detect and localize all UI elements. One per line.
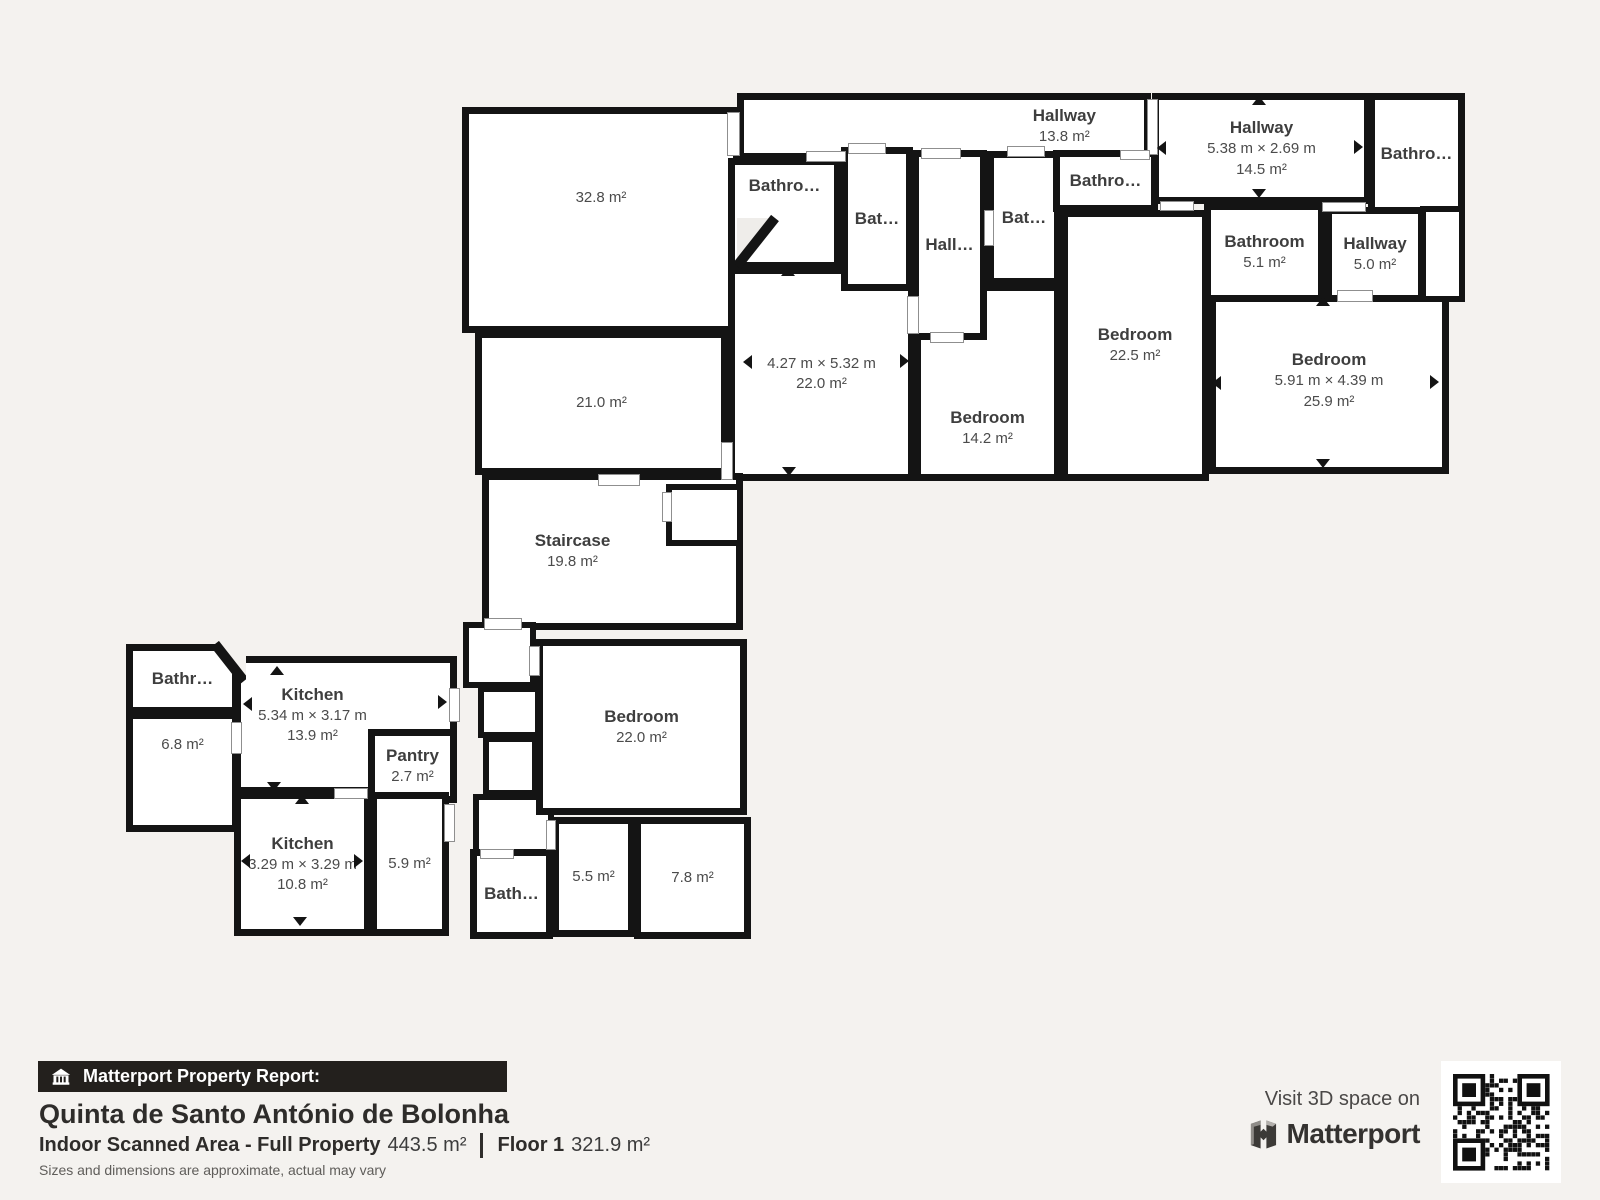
room-connector (478, 686, 541, 738)
matterport-wordmark: Matterport (1287, 1118, 1420, 1150)
dimension-arrow-right (1354, 140, 1363, 154)
room-bedroom-25-9: Bedroom 5.91 m × 4.39 m 25.9 m² (1209, 287, 1449, 474)
room-name: Bath… (484, 883, 539, 905)
room-area-6-8: 6.8 m² (126, 712, 239, 832)
door-opening (1007, 146, 1045, 157)
floor-label: Floor 1 (497, 1134, 564, 1157)
room-area: 19.8 m² (547, 552, 598, 572)
room-area: 14.5 m² (1236, 160, 1287, 180)
room-name: Kitchen (281, 684, 343, 706)
room-area-7-8: 7.8 m² (634, 817, 751, 939)
room-dims: 5.34 m × 3.17 m (258, 706, 367, 726)
room-area: 5.1 m² (1243, 253, 1286, 273)
dimension-arrow-left (241, 854, 250, 868)
dimension-arrow-right (1430, 375, 1439, 389)
diagonal-wall (210, 641, 246, 685)
matterport-promo: Visit 3D space on Matterport (1249, 1088, 1420, 1150)
room-name: Hallway (1033, 105, 1096, 127)
room-kitchen-10-8: Kitchen 3.29 m × 3.29 m 10.8 m² (234, 792, 371, 936)
room-name: Bedroom (604, 706, 679, 728)
room-dims: 5.38 m × 2.69 m (1207, 139, 1316, 159)
dimension-arrow-up (295, 795, 309, 804)
room-area: 21.0 m² (576, 393, 627, 413)
divider (480, 1133, 483, 1158)
room-name: Bat… (1002, 207, 1046, 229)
room-name: Pantry (386, 745, 439, 767)
room-name: Hallway (1343, 233, 1406, 255)
dimension-arrow-right (438, 695, 447, 709)
dimension-arrow-down (293, 917, 307, 926)
door-opening (484, 618, 522, 630)
room-area: 13.8 m² (1039, 127, 1090, 147)
room-area: 5.0 m² (1354, 255, 1397, 275)
room-area-32-8: 32.8 m² (462, 107, 740, 333)
room-area: 2.7 m² (391, 767, 434, 787)
area-summary: Indoor Scanned Area - Full Property 443.… (39, 1133, 664, 1158)
room-area: 5.9 m² (388, 854, 431, 874)
room-22-0-a: 4.27 m × 5.32 m 22.0 m² (728, 267, 915, 481)
dimension-arrow-up (270, 666, 284, 675)
dimension-arrow-left (1157, 141, 1166, 155)
dimension-arrow-left (243, 697, 252, 711)
room-closet (1420, 206, 1465, 302)
room-name: Kitchen (271, 833, 333, 855)
floor-value: 321.9 m² (571, 1134, 650, 1157)
door-opening (1160, 201, 1194, 211)
door-opening (1322, 202, 1366, 212)
room-bathroom-top-right: Bathro… (1368, 93, 1465, 216)
room-area: 13.9 m² (287, 726, 338, 746)
door-opening (449, 688, 460, 722)
dimension-arrow-down (782, 467, 796, 476)
property-name: Quinta de Santo António de Bolonha (39, 1099, 509, 1130)
dimension-arrow-up (1252, 96, 1266, 105)
room-connector (483, 736, 538, 796)
room-hallway-5-0: Hallway 5.0 m² (1325, 207, 1425, 302)
room-name: Staircase (535, 530, 611, 552)
qr-code (1441, 1061, 1561, 1183)
room-area: 22.0 m² (796, 374, 847, 394)
room-dims: 4.27 m × 5.32 m (767, 354, 876, 374)
room-stair-landing (666, 484, 743, 546)
room-name: Bat… (855, 208, 899, 230)
room-name: Hallway (1230, 117, 1293, 139)
diagonal-wall (735, 214, 781, 270)
room-bathroom-f: Bath… (470, 849, 553, 939)
disclaimer-text: Sizes and dimensions are approximate, ac… (39, 1162, 386, 1178)
room-name: Hall… (925, 234, 973, 256)
door-opening (721, 442, 733, 480)
door-opening (930, 332, 964, 343)
dimension-arrow-down (267, 782, 281, 791)
door-opening (727, 112, 740, 156)
report-bar: Matterport Property Report: (38, 1061, 507, 1092)
room-bathroom-c: Bat… (987, 151, 1061, 285)
room-name: Bathr… (152, 668, 213, 690)
dimension-arrow-down (1252, 189, 1266, 198)
room-name: Bedroom (1098, 324, 1173, 346)
door-opening (907, 296, 919, 334)
door-opening (546, 820, 556, 850)
door-opening (334, 788, 368, 799)
room-area: 14.2 m² (962, 429, 1013, 449)
door-opening (1120, 150, 1150, 160)
visit-3d-text: Visit 3D space on (1249, 1088, 1420, 1111)
room-name: Bedroom (1292, 349, 1367, 371)
room-area: 22.0 m² (616, 728, 667, 748)
room-bedroom-22-0: Bedroom 22.0 m² (536, 639, 747, 815)
room-dims: 3.29 m × 3.29 m (248, 855, 357, 875)
door-opening (1337, 290, 1373, 302)
room-name: Bathro… (1381, 143, 1453, 165)
room-hallway-14-5: Hallway 5.38 m × 2.69 m 14.5 m² (1152, 93, 1371, 204)
room-hall-corridor: Hall… (912, 150, 987, 340)
dimension-arrow-left (743, 355, 752, 369)
matterport-floor-plan-report: 32.8 m² 21.0 m² 4.27 m × 5.32 m 22.0 m² … (0, 0, 1600, 1200)
room-bathroom-b: Bat… (841, 147, 913, 291)
door-opening (529, 646, 540, 676)
room-connector (463, 622, 536, 688)
room-bathroom-5-1: Bathroom 5.1 m² (1204, 203, 1325, 302)
dimension-arrow-up (781, 267, 795, 276)
door-opening (848, 143, 886, 154)
room-area: 25.9 m² (1304, 392, 1355, 412)
room-area-5-5: 5.5 m² (552, 817, 635, 937)
room-area: 6.8 m² (161, 735, 204, 755)
room-area: 7.8 m² (671, 868, 714, 888)
dimension-arrow-right (900, 354, 909, 368)
report-bar-label: Matterport Property Report: (83, 1066, 320, 1087)
room-area-21-0: 21.0 m² (475, 331, 728, 475)
door-opening (921, 148, 961, 159)
dimension-arrow-right (354, 854, 363, 868)
room-bedroom-22-5: Bedroom 22.5 m² (1061, 210, 1209, 481)
dimension-arrow-left (1212, 376, 1221, 390)
room-name: Bathro… (1070, 170, 1142, 192)
dimension-arrow-down (1316, 459, 1330, 468)
room-area: 32.8 m² (576, 188, 627, 208)
door-opening (480, 849, 514, 859)
room-name: Bedroom (950, 407, 1025, 429)
door-opening (598, 474, 640, 486)
room-area: 10.8 m² (277, 875, 328, 895)
floor-plan: 32.8 m² 21.0 m² 4.27 m × 5.32 m 22.0 m² … (0, 0, 1600, 1200)
matterport-logo-icon (1249, 1119, 1278, 1150)
door-opening (984, 210, 994, 246)
room-area: 5.5 m² (572, 867, 615, 887)
room-area: 22.5 m² (1110, 346, 1161, 366)
room-dims: 5.91 m × 4.39 m (1275, 371, 1384, 391)
property-icon (51, 1067, 71, 1087)
door-opening (806, 151, 846, 162)
room-area-5-9: 5.9 m² (370, 792, 449, 936)
room-name: Bathroom (1224, 231, 1304, 253)
room-name: Bathro… (749, 175, 821, 197)
scanned-area-label: Indoor Scanned Area - Full Property (39, 1134, 381, 1157)
door-opening (231, 722, 242, 754)
dimension-arrow-up (1316, 297, 1330, 306)
scanned-area-value: 443.5 m² (388, 1134, 467, 1157)
door-opening (444, 804, 455, 842)
door-opening (662, 492, 672, 522)
